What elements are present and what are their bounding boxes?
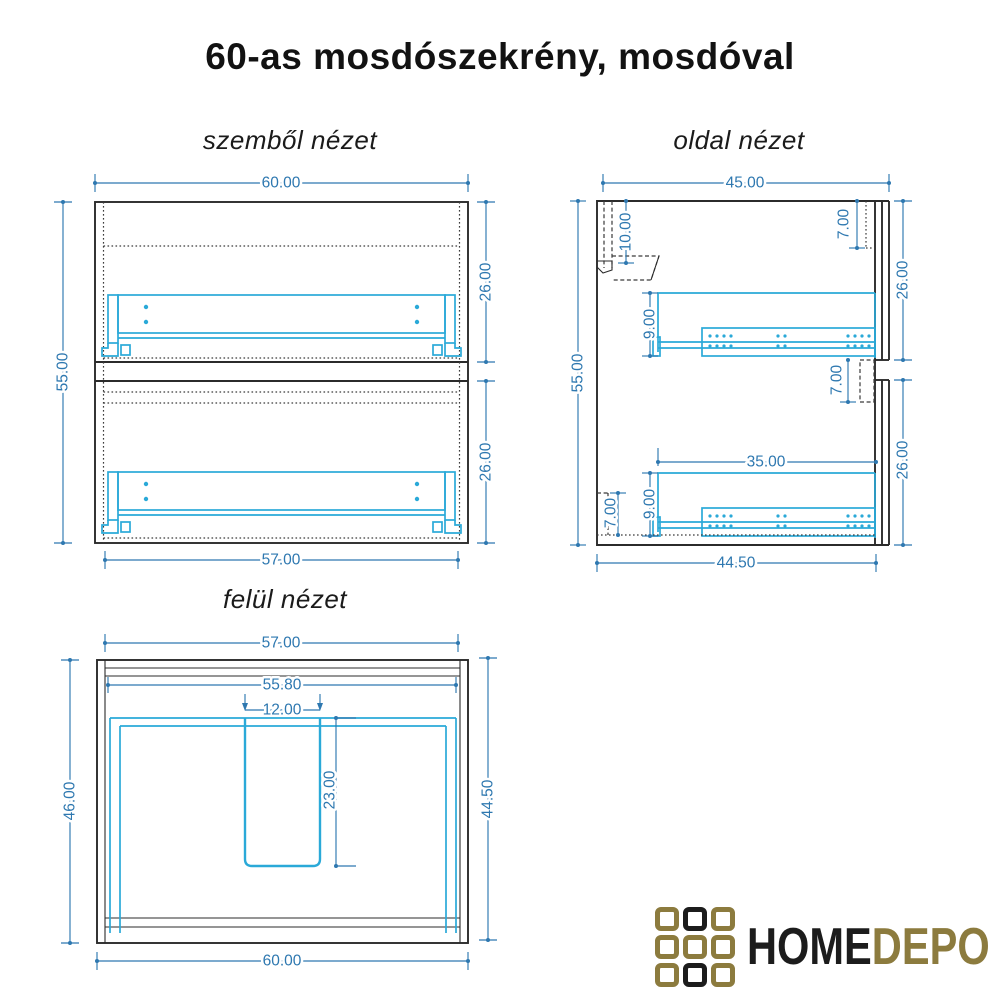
front-view-label: szemből nézet [140,125,440,156]
side-dim-height-left-value: 55.00 [570,353,587,392]
front-dim-lower-right: 26.00 [477,379,495,545]
logo-grid-cell-gold [711,907,735,931]
top-dim-cutout-depth-value: 23.00 [322,770,339,809]
side-dim-rail-upper-value: 9.00 [642,309,659,340]
front-lower-drawer-box [102,472,461,533]
top-view-drawing: 57.00 55.80 12.00 23.00 46.00 44.50 60.0… [40,620,520,990]
top-dim-width-top-value: 57.00 [262,635,301,652]
logo-grid-cell-gold [655,963,679,987]
logo-grid-cell-gold [683,935,707,959]
side-upper-drawer-rail [653,293,875,358]
front-dim-height-left-value: 55.00 [55,352,72,391]
front-dim-width-top: 60.00 [93,174,470,192]
front-dim-width-top-value: 60.00 [262,175,301,192]
top-dim-depth-right-value: 44.50 [480,779,497,818]
front-dim-width-bottom: 57.00 [103,551,460,569]
logo-grid-cell-gold [711,935,735,959]
side-dim-depth-bottom-value: 44.50 [717,555,756,572]
top-dim-width-bottom-value: 60.00 [263,953,302,970]
side-dim-mid-recess-value: 7.00 [829,365,846,396]
sink-cutout [245,718,320,866]
top-dim-inner-width-value: 55.80 [263,677,302,694]
top-dim-depth-left: 46.00 [61,658,79,945]
side-dim-height-left: 55.00 [570,199,587,547]
side-mid-recess-hidden [860,360,874,402]
side-dim-rail-lower-value: 9.00 [642,489,659,520]
top-dim-cutout-width-value: 12.00 [263,702,302,719]
side-dim-upper-right-value: 26.00 [895,260,912,299]
logo-grid-icon [655,907,735,987]
side-top-recess-hidden [866,201,875,248]
front-dim-lower-right-value: 26.00 [478,442,495,481]
side-dim-plinth-value: 7.00 [603,498,620,529]
front-view-drawing: 60.00 55.00 26.00 26.00 57.00 [40,160,520,590]
side-dim-rail-lower: 9.00 [642,471,659,538]
front-dim-height-left: 55.00 [54,200,72,545]
side-dim-top-recess: 7.00 [836,199,866,250]
front-cabinet-outline [95,202,468,543]
logo-grid-cell-gold [655,907,679,931]
side-dim-lower-right-value: 26.00 [895,440,912,479]
page-title: 60-as mosdószekrény, mosdóval [0,36,1000,78]
front-upper-drawer-box [102,295,461,356]
side-dim-depth-bottom: 44.50 [595,554,878,572]
side-dim-upper-right: 26.00 [894,199,912,362]
top-dim-cutout-depth: 23.00 [322,716,357,868]
side-wall-rail [604,201,612,268]
side-dim-depth-top: 45.00 [601,174,891,192]
top-dim-width-bottom: 60.00 [95,952,470,970]
top-dim-depth-left-value: 46.00 [62,781,79,820]
side-dim-rail-length-value: 35.00 [747,454,786,471]
side-dim-mid-recess: 7.00 [829,358,857,404]
side-dim-rail-length: 35.00 [656,448,878,471]
side-dim-bracket-drop: 10.00 [618,199,635,265]
side-dim-plinth: 7.00 [603,491,627,537]
side-dim-rail-upper: 9.00 [642,291,659,358]
logo-grid-cell-black [683,907,707,931]
side-view-label: oldal nézet [589,125,889,156]
logo-grid-cell-black [683,963,707,987]
side-dim-depth-top-value: 45.00 [726,175,765,192]
front-dim-upper-right-value: 26.00 [478,262,495,301]
side-dim-lower-right: 26.00 [894,378,912,547]
top-dim-cutout-width: 12.00 [242,694,323,719]
side-mount-bracket [612,256,659,280]
logo-grid-cell-gold [655,935,679,959]
top-dim-width-top: 57.00 [103,634,460,652]
top-dim-inner-width: 55.80 [106,677,458,694]
top-basin-outline [110,718,456,933]
top-dim-depth-right: 44.50 [479,656,497,942]
side-dim-bracket-drop-value: 10.00 [618,212,635,251]
front-dim-width-bottom-value: 57.00 [262,552,301,569]
side-lower-drawer-rail [653,473,875,538]
homedepo-logo: HOMEDEPO [655,907,1000,987]
side-dim-top-recess-value: 7.00 [836,209,853,240]
front-hidden-lines [104,202,460,543]
logo-text: HOMEDEPO [747,921,990,973]
logo-text-depo: DEPO [872,918,990,976]
front-dim-upper-right: 26.00 [477,200,495,364]
logo-grid-cell-gold [711,963,735,987]
logo-text-home: HOME [747,918,872,976]
side-view-drawing: 45.00 55.00 10.00 7.00 9.00 7.00 35.00 [560,160,1000,590]
